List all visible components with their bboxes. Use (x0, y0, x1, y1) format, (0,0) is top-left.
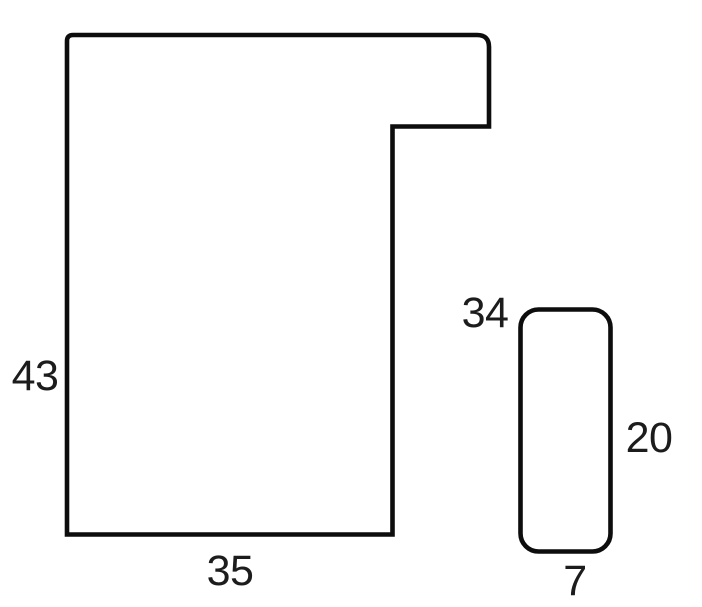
small-profile-width-label: 7 (563, 557, 586, 605)
small-profile-top-label: 34 (462, 289, 509, 337)
large-profile-height-label: 43 (12, 352, 59, 400)
large-profile-outline (67, 35, 489, 535)
large-profile-width-label: 35 (207, 547, 254, 595)
profile-drawing-canvas: 43 35 34 20 7 (0, 0, 702, 607)
profile-drawing: 43 35 34 20 7 (0, 0, 702, 607)
small-profile-height-label: 20 (626, 414, 673, 462)
small-profile-outline (521, 310, 611, 552)
